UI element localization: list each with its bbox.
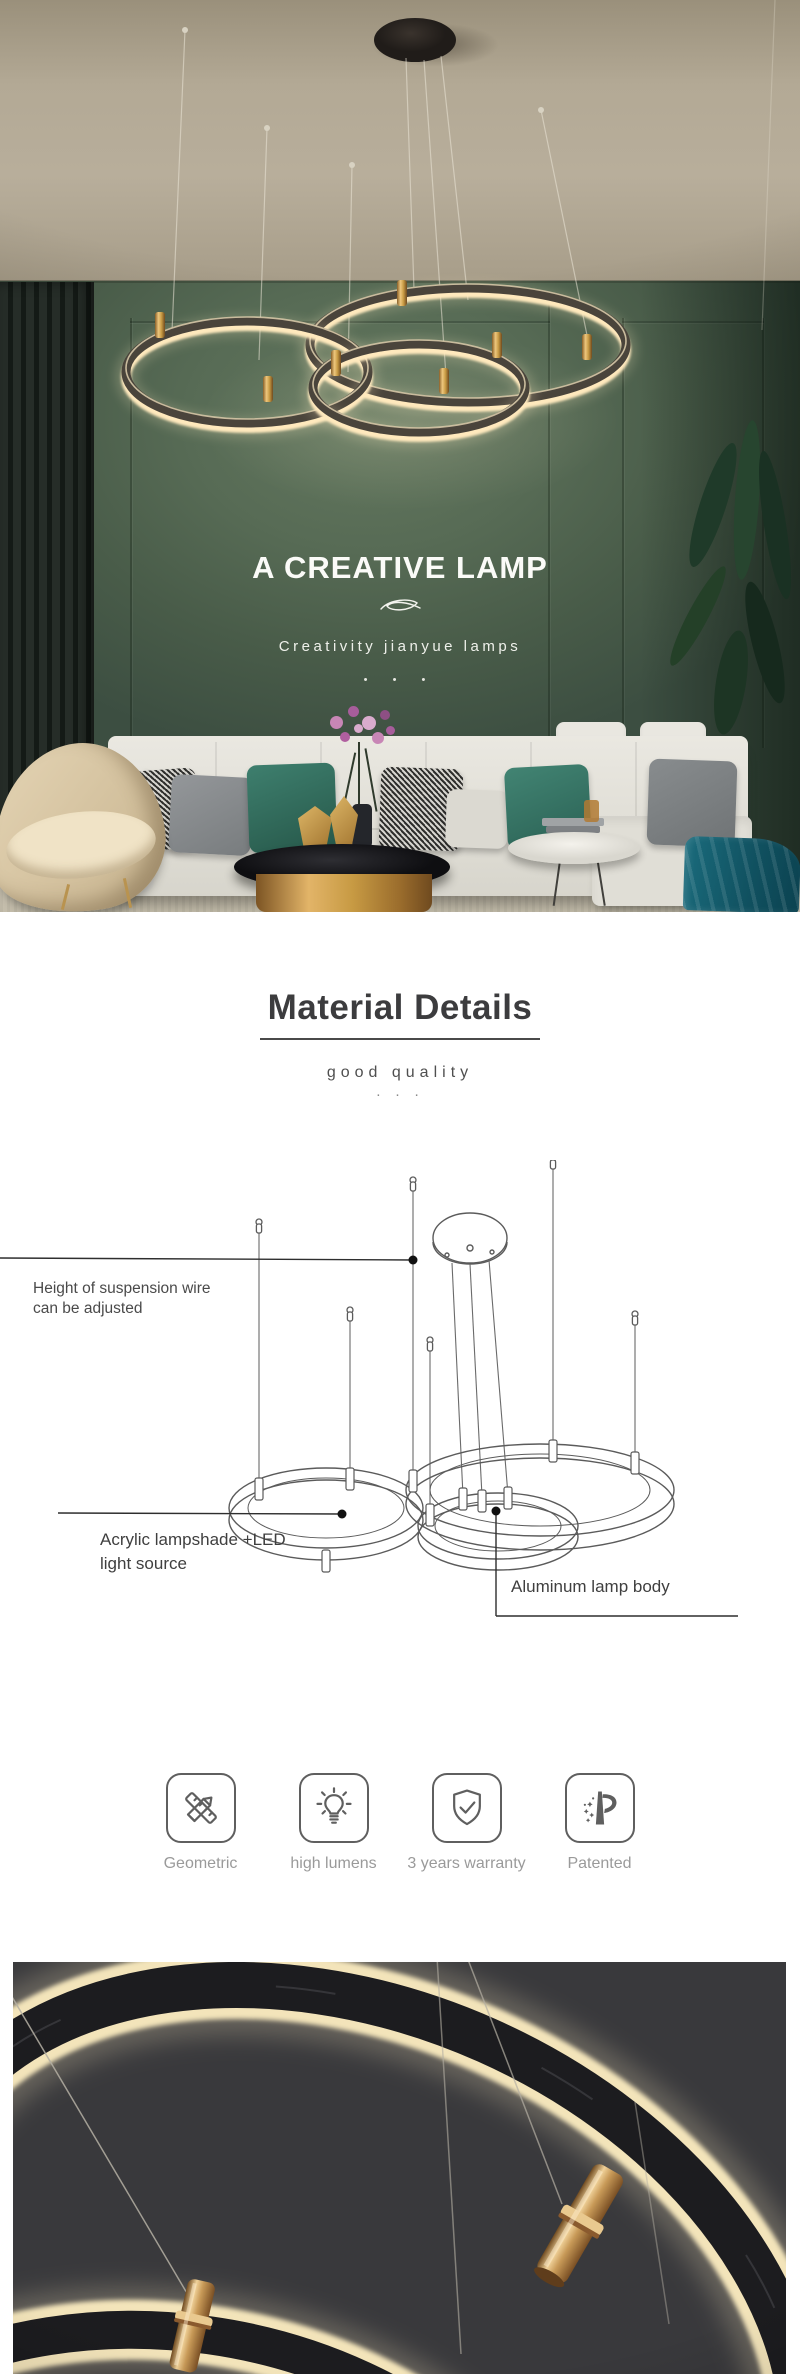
annotation-acrylic-line1: Acrylic lampshade +LED bbox=[100, 1530, 286, 1549]
swoosh-icon bbox=[378, 596, 422, 616]
feature-icons-row: Geometric high lumens 3 years warranty bbox=[0, 1700, 800, 1962]
photo-vignette bbox=[13, 1962, 786, 2374]
cushion-gray bbox=[647, 758, 738, 847]
pencil-ruler-icon bbox=[179, 1786, 223, 1830]
feature-box bbox=[565, 1773, 635, 1843]
cushion-white bbox=[445, 789, 509, 849]
hero-title: A CREATIVE LAMP bbox=[0, 550, 800, 586]
side-table bbox=[508, 832, 640, 864]
light-bulb-icon bbox=[312, 1786, 356, 1830]
amber-glass bbox=[584, 800, 599, 822]
feature-label: 3 years warranty bbox=[407, 1855, 525, 1873]
teal-throw-blanket bbox=[683, 836, 800, 912]
diagram-wires bbox=[259, 1168, 635, 1510]
product-detail-page: A CREATIVE LAMP Creativity jianyue lamps… bbox=[0, 0, 800, 2374]
feature-label: high lumens bbox=[290, 1855, 376, 1873]
diagram-rings bbox=[229, 1444, 674, 1570]
section-subheading: good quality bbox=[0, 1064, 800, 1082]
section-heading: Material Details bbox=[260, 988, 541, 1040]
material-details-section: Material Details good quality · · · bbox=[0, 912, 800, 1160]
feature-warranty: 3 years warranty bbox=[432, 1773, 502, 1843]
wire-adjusters bbox=[256, 1160, 638, 1351]
cushion-gray bbox=[168, 774, 254, 856]
feature-geometric: Geometric bbox=[166, 1773, 236, 1843]
feature-box bbox=[166, 1773, 236, 1843]
feature-box bbox=[432, 1773, 502, 1843]
feature-label: Patented bbox=[567, 1855, 631, 1873]
annotation-aluminum: Aluminum lamp body bbox=[511, 1577, 670, 1596]
hero-dots: • • • bbox=[0, 674, 800, 686]
diagram-canvas: Height of suspension wire can be adjuste… bbox=[0, 1160, 800, 1700]
hero-subtitle: Creativity jianyue lamps bbox=[0, 638, 800, 655]
coffee-table-base bbox=[256, 874, 432, 912]
lamp-structure-diagram: Height of suspension wire can be adjuste… bbox=[0, 1160, 800, 1700]
diagram-canopy bbox=[433, 1213, 507, 1264]
feature-patented: Patented bbox=[565, 1773, 635, 1843]
annotation-suspension-line1: Height of suspension wire bbox=[33, 1280, 211, 1297]
ceiling-anchors bbox=[182, 27, 544, 168]
feature-label: Geometric bbox=[164, 1855, 238, 1873]
hero-room-photo: A CREATIVE LAMP Creativity jianyue lamps… bbox=[0, 0, 800, 912]
annotation-suspension-line2: can be adjusted bbox=[33, 1300, 142, 1317]
feature-box bbox=[299, 1773, 369, 1843]
section-dots: · · · bbox=[0, 1086, 800, 1103]
patent-icon bbox=[578, 1786, 622, 1830]
lamp-closeup-photo bbox=[13, 1962, 786, 2374]
shield-check-icon bbox=[445, 1786, 489, 1830]
annotation-acrylic-line2: light source bbox=[100, 1554, 187, 1573]
feature-high-lumens: high lumens bbox=[299, 1773, 369, 1843]
